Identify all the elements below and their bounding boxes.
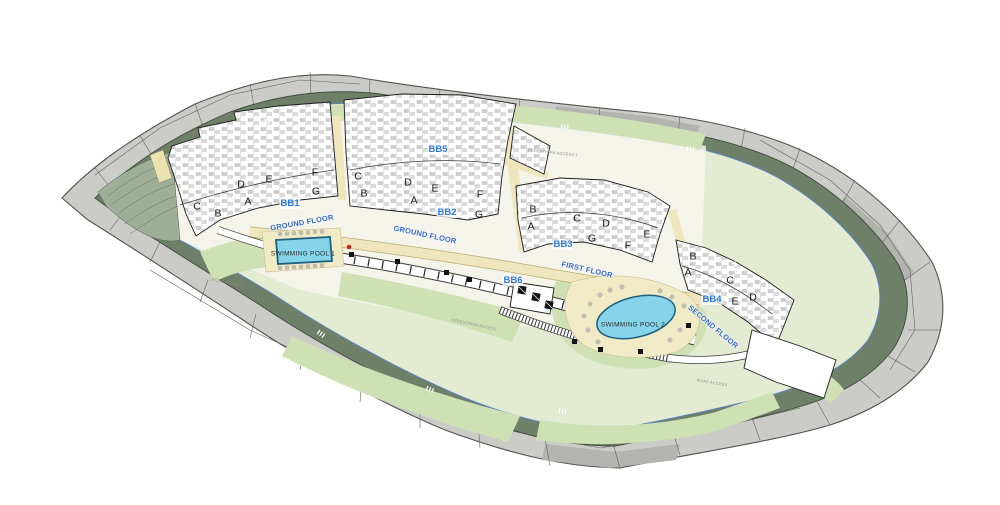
unit-label-bb3-d: D [602,218,610,229]
block-label-bb1: BB1 [279,199,300,209]
unit-label-bb1-g: G [312,186,320,197]
unit-label-bb2-b: B [360,188,367,199]
unit-label-bb3-c: C [573,213,581,224]
unit-label-bb4-c: C [726,275,734,286]
site-plan-canvas: C B A D E F G C B D E A F G B A C D G E … [0,0,1000,505]
pool-2-label: SWIMMING POOL 2 [601,323,665,330]
block-label-bb2: BB2 [436,208,457,218]
unit-label-bb2-c: C [354,171,362,182]
unit-label-bb3-b: B [529,204,536,215]
block-label-bb3: BB3 [552,240,573,250]
unit-label-bb2-e: E [431,183,438,194]
pool-1-label: SWIMMING POOL 1 [271,252,335,259]
unit-label-bb4-d: D [749,292,757,303]
block-label-bb6: BB6 [502,276,523,286]
unit-label-bb4-e: E [731,296,738,307]
unit-label-bb1-f: F [312,167,318,178]
unit-label-bb2-a: A [410,195,417,206]
unit-label-bb2-d: D [404,177,412,188]
building-bb2-bb5 [344,94,516,220]
block-label-bb5: BB5 [427,145,448,155]
unit-label-bb3-f: F [625,240,631,251]
site-plan-drawing [0,0,1000,505]
unit-label-bb3-g: G [588,233,596,244]
unit-label-bb1-b: B [214,208,221,219]
block-label-bb4: BB4 [701,295,722,305]
unit-label-bb2-g: G [475,209,483,220]
unit-label-bb1-d: D [237,179,245,190]
red-marker-dot [347,245,352,250]
unit-label-bb4-b: B [689,251,696,262]
unit-label-bb3-e: E [643,229,650,240]
unit-label-bb1-a: A [244,196,251,207]
unit-label-bb4-a: A [684,267,691,278]
unit-label-bb2-f: F [477,189,483,200]
unit-label-bb3-a: A [527,221,534,232]
unit-label-bb1-c: C [193,201,201,212]
unit-label-bb1-e: E [265,174,272,185]
